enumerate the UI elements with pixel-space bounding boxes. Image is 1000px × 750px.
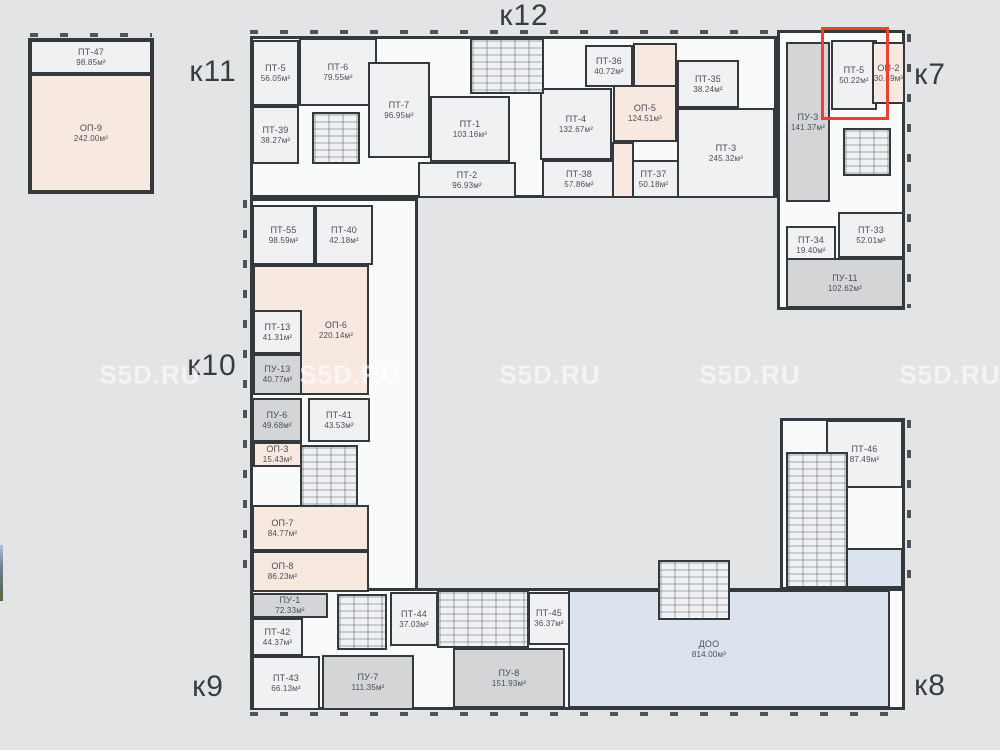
- unit-area: 40.72м²: [594, 67, 624, 77]
- unit-name: ПТ-13: [263, 322, 293, 333]
- unit-area: 37.03м²: [399, 620, 429, 630]
- unit-name: ПТ-55: [269, 225, 299, 236]
- unit-name: ПТ-45: [534, 608, 564, 619]
- unit-area: 102.62м²: [828, 284, 862, 294]
- stair-core-icon: [437, 590, 529, 648]
- unit-area: 72.33м²: [275, 606, 305, 616]
- unit-op-8[interactable]: ОП-886.23м²: [252, 551, 369, 592]
- unit-pt-42[interactable]: ПТ-4244.37м²: [252, 618, 303, 656]
- unit-pt-5[interactable]: ПТ-556.05м²: [252, 40, 299, 106]
- unit-pt-7[interactable]: ПТ-796.95м²: [368, 62, 430, 158]
- unit-area: 84.77м²: [268, 529, 298, 539]
- photo-edge-artifact: [0, 545, 3, 601]
- unit-name: ПТ-4: [559, 114, 593, 125]
- unit-area: 56.05м²: [261, 74, 291, 84]
- unit-area: 96.95м²: [384, 111, 414, 121]
- unit-area: 66.13м²: [271, 684, 301, 694]
- unit-name: ПТ-34: [796, 235, 826, 246]
- unit-name: ДОО: [692, 639, 726, 650]
- unit-area: 36.37м²: [534, 619, 564, 629]
- unit-name: ПУ-3: [791, 112, 825, 123]
- unit-name: ОП-5: [628, 103, 662, 114]
- unit-pt-35[interactable]: ПТ-3538.24м²: [677, 60, 739, 108]
- unit-area: 242.00м²: [74, 134, 108, 144]
- unit-area: 220.14м²: [319, 331, 353, 341]
- site-watermark: S5D.RU: [99, 360, 200, 391]
- unit-pt-3[interactable]: ПТ-3245.32м²: [677, 108, 775, 198]
- stair-core-icon: [337, 594, 387, 650]
- unit-area: 38.24м²: [693, 85, 723, 95]
- window-ticks: [907, 420, 911, 588]
- unit-area: 111.35м²: [351, 683, 384, 693]
- stair-core-icon: [312, 112, 360, 164]
- unit-name: ОП-9: [74, 123, 108, 134]
- unit-pt-47[interactable]: ПТ-4798.85м²: [30, 40, 152, 74]
- unit-name: ПУ-1: [275, 595, 305, 606]
- floor-plan: ПТ-4798.85м²ОП-9242.00м²ПТ-556.05м²ПТ-67…: [0, 0, 1000, 750]
- unit-area: 98.59м²: [269, 236, 299, 246]
- building-label-k10: к10: [187, 349, 237, 383]
- room-annex: [845, 548, 903, 588]
- unit-area: 98.85м²: [76, 58, 106, 68]
- unit-name: ПТ-44: [399, 609, 429, 620]
- site-watermark: S5D.RU: [499, 360, 600, 391]
- unit-area: 44.37м²: [263, 638, 293, 648]
- unit-pt-1[interactable]: ПТ-1103.16м²: [430, 96, 510, 162]
- unit-pu-8[interactable]: ПУ-8151.93м²: [453, 648, 565, 708]
- unit-name: ПТ-35: [693, 74, 723, 85]
- stair-core-icon: [300, 445, 358, 507]
- unit-area: 245.32м²: [709, 154, 743, 164]
- unit-op-5[interactable]: ОП-5124.51м²: [613, 85, 677, 142]
- unit-area: 57.86м²: [564, 180, 594, 190]
- stair-core-icon: [470, 38, 544, 94]
- unit-pt-41[interactable]: ПТ-4143.53м²: [308, 398, 370, 442]
- unit-name: ОП-7: [268, 518, 298, 529]
- unit-name: ПТ-7: [384, 100, 414, 111]
- unit-pu-6[interactable]: ПУ-649.68м²: [252, 398, 302, 442]
- unit-area: 151.93м²: [492, 679, 526, 689]
- unit-name: ПТ-5: [261, 63, 291, 74]
- unit-name: ПТ-1: [453, 119, 487, 130]
- unit-pt-40[interactable]: ПТ-4042.18м²: [315, 205, 373, 265]
- unit-name: ПТ-3: [709, 143, 743, 154]
- room-annex: [612, 142, 634, 198]
- unit-area: 141.37м²: [791, 123, 825, 133]
- room-annex: [633, 43, 677, 87]
- stair-core-icon: [658, 560, 730, 620]
- unit-pu-13[interactable]: ПУ-1340.77м²: [253, 354, 302, 395]
- window-ticks: [243, 200, 247, 590]
- unit-pu-7[interactable]: ПУ-7111.35м²: [322, 655, 414, 710]
- unit-op-3[interactable]: ОП-315.43м²: [253, 442, 302, 467]
- unit-pt-44[interactable]: ПТ-4437.03м²: [390, 592, 438, 646]
- unit-pu-1[interactable]: ПУ-172.33м²: [252, 593, 328, 618]
- unit-pt-2[interactable]: ПТ-296.93м²: [418, 162, 516, 198]
- unit-area: 40.77м²: [263, 375, 293, 385]
- unit-area: 49.68м²: [262, 421, 292, 431]
- selected-unit-highlight[interactable]: [821, 27, 889, 120]
- unit-name: ПТ-47: [76, 47, 106, 58]
- site-watermark: S5D.RU: [899, 360, 1000, 391]
- unit-name: ПТ-41: [324, 410, 354, 421]
- unit-area: 52.01м²: [856, 236, 886, 246]
- unit-area: 42.18м²: [329, 236, 359, 246]
- unit-area: 15.43м²: [263, 455, 293, 465]
- unit-pt-33[interactable]: ПТ-3352.01м²: [838, 212, 904, 258]
- unit-name: ПТ-43: [271, 673, 301, 684]
- unit-pt-55[interactable]: ПТ-5598.59м²: [252, 205, 315, 265]
- unit-name: ПТ-6: [323, 62, 353, 73]
- unit-name: ПТ-40: [329, 225, 359, 236]
- building-label-k8: к8: [914, 669, 946, 703]
- unit-name: ОП-8: [268, 561, 298, 572]
- unit-area: 79.55м²: [323, 73, 353, 83]
- unit-area: 19.40м²: [796, 246, 826, 256]
- unit-area: 132.67м²: [559, 125, 593, 135]
- unit-name: ПУ-13: [263, 364, 293, 375]
- unit-pt-13[interactable]: ПТ-1341.31м²: [253, 310, 302, 354]
- unit-area: 814.00м²: [692, 650, 726, 660]
- unit-area: 43.53м²: [324, 421, 354, 431]
- unit-name: ПТ-2: [452, 170, 482, 181]
- unit-name: ПТ-37: [639, 169, 669, 180]
- unit-name: ПУ-6: [262, 410, 292, 421]
- unit-name: ПТ-36: [594, 56, 624, 67]
- unit-pt-38[interactable]: ПТ-3857.86м²: [542, 160, 616, 198]
- unit-area: 96.93м²: [452, 181, 482, 191]
- stair-core-icon: [843, 128, 891, 176]
- unit-area: 41.31м²: [263, 333, 293, 343]
- unit-name: ПТ-42: [263, 627, 293, 638]
- unit-area: 50.18м²: [639, 180, 669, 190]
- unit-name: ПТ-46: [850, 444, 880, 455]
- unit-pt-39[interactable]: ПТ-3938.27м²: [252, 106, 299, 164]
- stair-core-icon: [786, 452, 848, 588]
- unit-pt-43[interactable]: ПТ-4366.13м²: [252, 656, 320, 710]
- window-ticks: [250, 712, 905, 716]
- site-watermark: S5D.RU: [699, 360, 800, 391]
- unit-name: ПУ-11: [828, 273, 862, 284]
- unit-name: ПТ-39: [261, 125, 291, 136]
- unit-name: ПТ-33: [856, 225, 886, 236]
- building-label-k7: к7: [914, 58, 946, 92]
- unit-area: 87.49м²: [850, 455, 880, 465]
- building-label-k11: к11: [189, 55, 236, 89]
- window-ticks: [30, 33, 152, 37]
- unit-op-9[interactable]: ОП-9242.00м²: [30, 74, 152, 192]
- unit-name: ПТ-38: [564, 169, 594, 180]
- unit-pu-11[interactable]: ПУ-11102.62м²: [786, 258, 904, 308]
- unit-pt-36[interactable]: ПТ-3640.72м²: [585, 45, 633, 87]
- unit-name: ПУ-8: [492, 668, 526, 679]
- unit-pt-6[interactable]: ПТ-679.55м²: [299, 38, 377, 106]
- unit-name: ПУ-7: [351, 672, 384, 683]
- unit-area: 38.27м²: [261, 136, 291, 146]
- unit-area: 124.51м²: [628, 114, 662, 124]
- building-label-k9: к9: [192, 670, 224, 704]
- unit-area: 103.16м²: [453, 130, 487, 140]
- unit-area: 86.23м²: [268, 572, 298, 582]
- building-label-k12: к12: [499, 0, 549, 33]
- unit-name: ОП-6: [319, 320, 353, 331]
- window-ticks: [907, 34, 911, 308]
- unit-pt-45[interactable]: ПТ-4536.37м²: [528, 592, 570, 645]
- unit-name: ОП-3: [263, 444, 293, 455]
- unit-pt-4[interactable]: ПТ-4132.67м²: [540, 88, 612, 160]
- unit-op-7[interactable]: ОП-784.77м²: [252, 505, 369, 551]
